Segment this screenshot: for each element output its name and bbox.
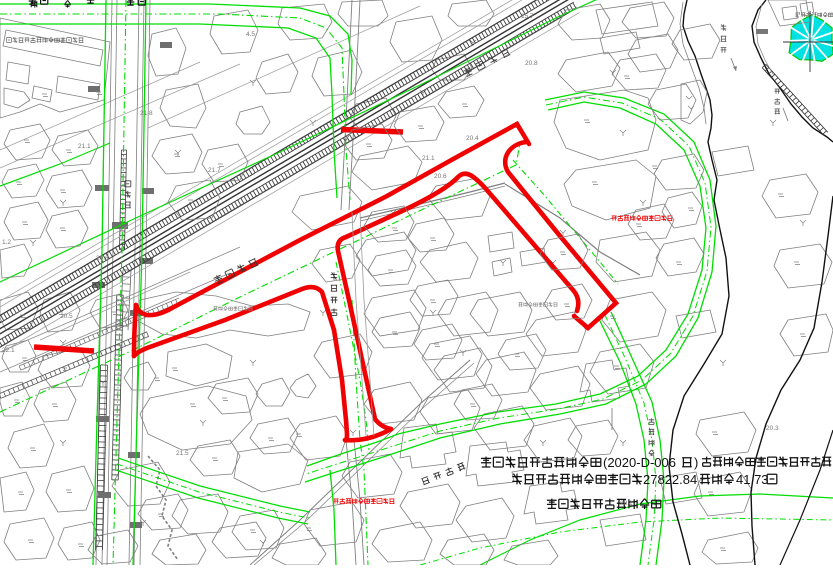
svg-text:27822.84: 27822.84 (643, 472, 697, 487)
svg-text:20.6: 20.6 (434, 173, 447, 180)
svg-text:41.73: 41.73 (736, 472, 769, 487)
svg-text:20.1: 20.1 (620, 500, 633, 507)
svg-text:20.8: 20.8 (525, 60, 538, 67)
svg-text:(2020-D-006: (2020-D-006 (603, 455, 676, 470)
svg-text:22.1: 22.1 (2, 347, 15, 354)
svg-text:21.7: 21.7 (208, 167, 221, 174)
svg-text:1.2: 1.2 (2, 239, 11, 246)
svg-text:21.1: 21.1 (78, 143, 91, 150)
svg-text:15.7: 15.7 (521, 13, 534, 20)
svg-text:20.6: 20.6 (96, 255, 109, 262)
svg-text:): ) (694, 455, 698, 470)
svg-text:21.5: 21.5 (176, 450, 189, 457)
svg-text:21.8: 21.8 (140, 110, 153, 117)
svg-text:20.3: 20.3 (766, 425, 779, 432)
svg-text:20.5: 20.5 (60, 313, 73, 320)
svg-text:21.1: 21.1 (422, 155, 435, 162)
svg-text:20.4: 20.4 (466, 135, 479, 142)
svg-text:4.5: 4.5 (246, 31, 255, 38)
